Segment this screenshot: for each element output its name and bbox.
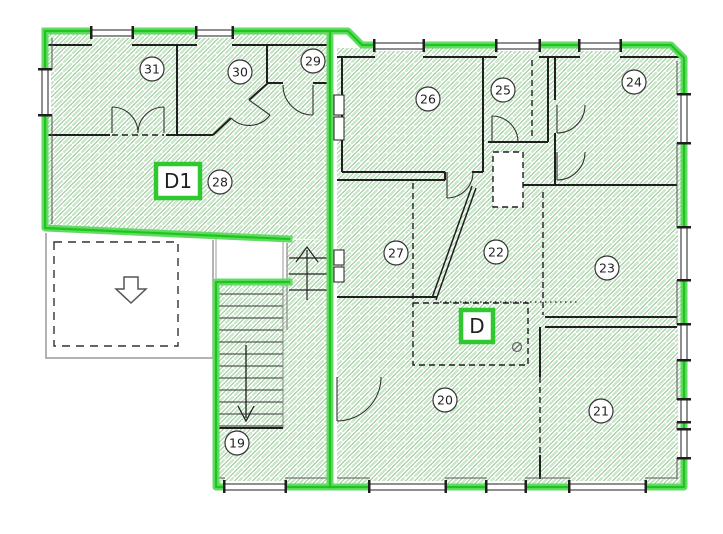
window <box>677 323 691 362</box>
window <box>495 39 541 52</box>
room-number-28: 28 <box>208 170 232 194</box>
room-number-26: 26 <box>416 87 440 111</box>
svg-text:26: 26 <box>420 92 436 107</box>
svg-text:30: 30 <box>232 65 248 80</box>
svg-text:20: 20 <box>437 393 453 408</box>
room-number-31: 31 <box>140 57 164 81</box>
svg-text:22: 22 <box>488 245 504 260</box>
window <box>677 398 691 424</box>
window <box>485 480 527 493</box>
stair-landing <box>216 238 283 282</box>
window <box>38 68 52 117</box>
room-number-23: 23 <box>595 256 619 280</box>
room-number-29: 29 <box>301 49 325 73</box>
room-number-21: 21 <box>589 399 613 423</box>
window <box>90 26 134 39</box>
svg-text:24: 24 <box>626 75 642 90</box>
svg-text:21: 21 <box>593 404 609 419</box>
svg-text:29: 29 <box>305 54 321 69</box>
window <box>368 480 447 493</box>
room-number-24: 24 <box>622 70 646 94</box>
room-number-20: 20 <box>433 388 457 412</box>
svg-text:31: 31 <box>144 62 160 77</box>
window <box>677 428 691 460</box>
unit-label-D: D <box>461 310 493 342</box>
floor-plan-canvas: 19202122232425262728293031D1D <box>0 0 723 534</box>
unit-label-D1: D1 <box>156 164 200 198</box>
window <box>568 480 647 493</box>
svg-text:27: 27 <box>388 246 404 261</box>
room-number-19: 19 <box>225 431 249 455</box>
room-number-22: 22 <box>484 240 508 264</box>
svg-text:23: 23 <box>599 261 615 276</box>
svg-text:D: D <box>469 314 484 338</box>
svg-text:25: 25 <box>495 83 511 98</box>
room-number-27: 27 <box>384 241 408 265</box>
terrace-area <box>46 233 213 358</box>
svg-text:28: 28 <box>212 175 228 190</box>
window <box>677 226 691 282</box>
window <box>677 93 691 145</box>
window <box>373 39 425 52</box>
window <box>223 480 287 493</box>
floor-plan-svg: 19202122232425262728293031D1D <box>0 0 723 534</box>
svg-text:D1: D1 <box>164 169 192 193</box>
room-number-30: 30 <box>228 60 252 84</box>
room-number-25: 25 <box>491 78 515 102</box>
svg-text:19: 19 <box>229 436 245 451</box>
window <box>578 39 622 52</box>
window <box>195 26 234 39</box>
